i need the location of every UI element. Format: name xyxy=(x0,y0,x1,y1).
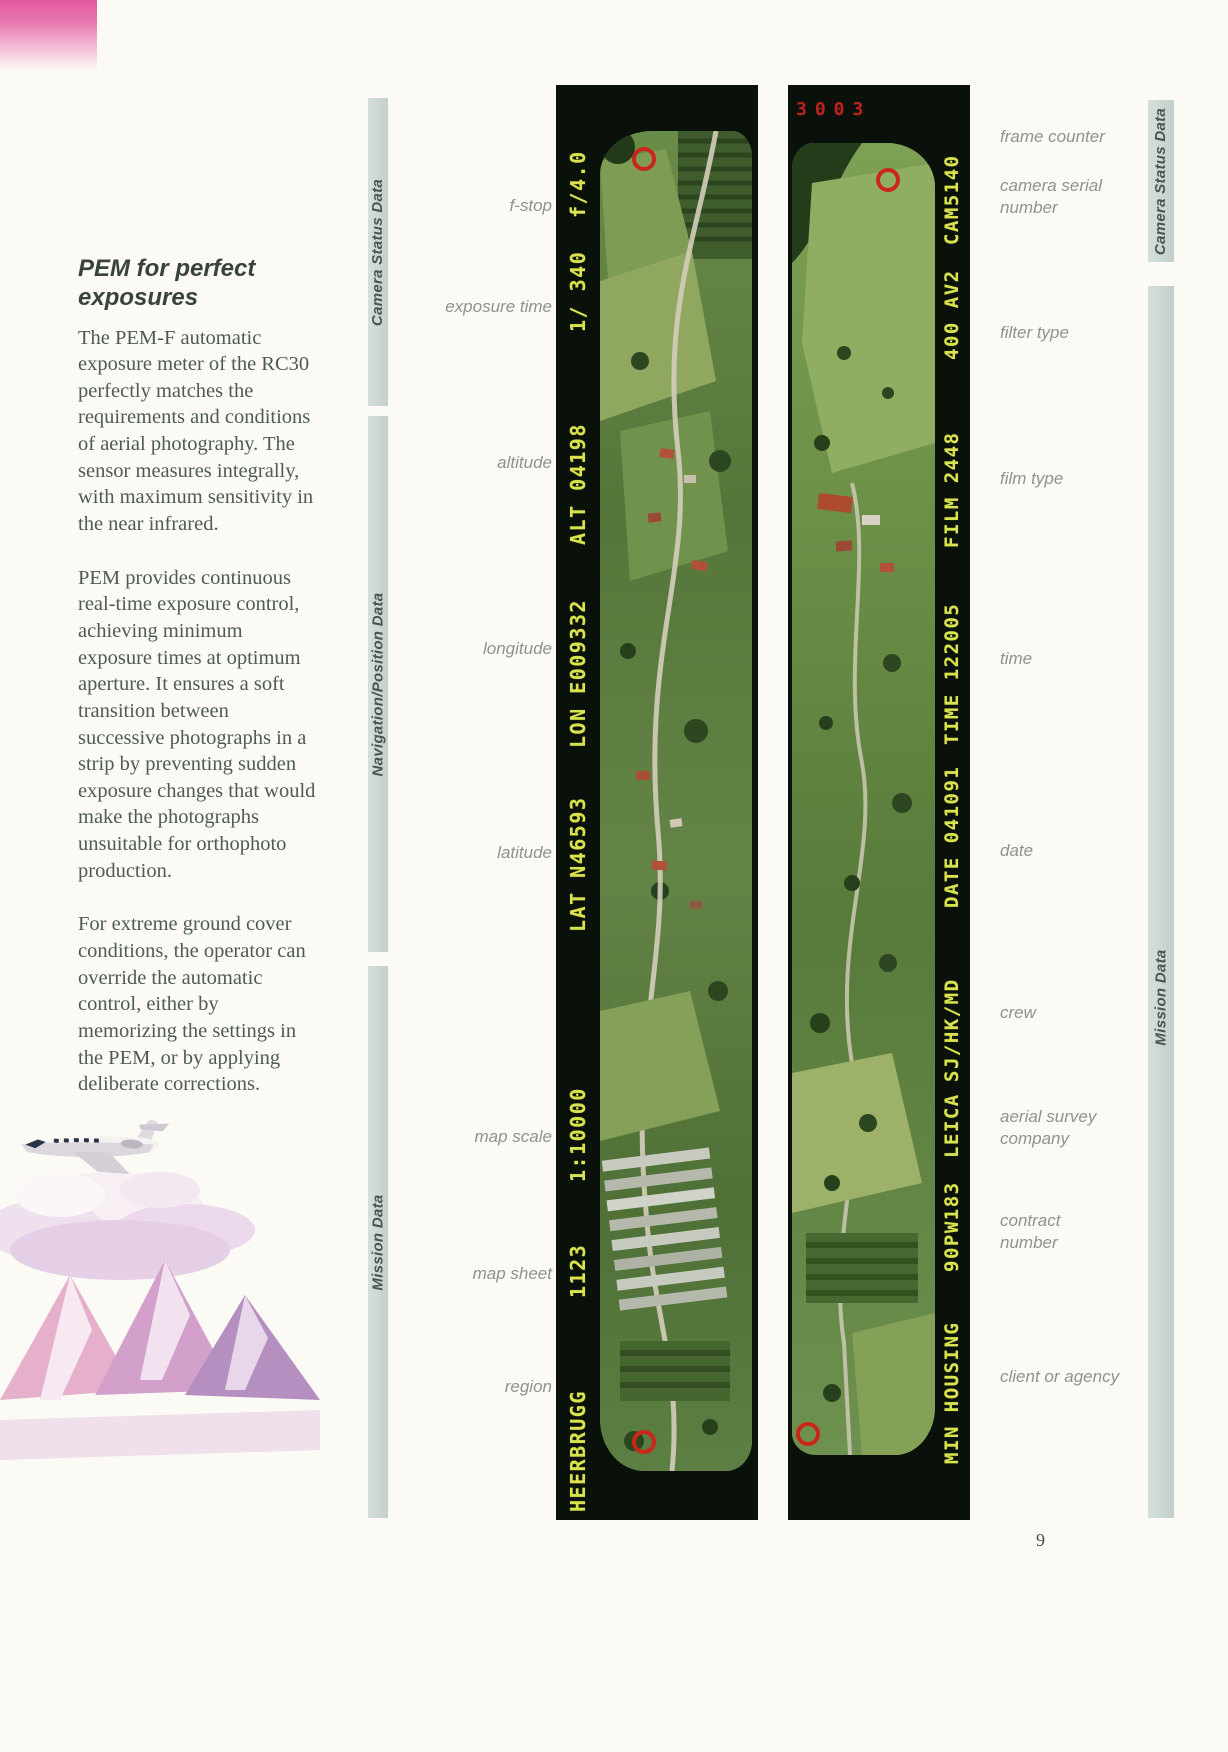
label-film-type: film type xyxy=(1000,468,1124,490)
annotation-map-scale: 1:10000 xyxy=(556,1087,600,1182)
annotation-longitude: LON E009332 xyxy=(556,599,600,748)
label-aerial-survey-company: aerial survey company xyxy=(1000,1106,1110,1150)
annotation-exposure-time: 1/ 340 xyxy=(556,251,600,332)
annotation-contract: 90PW183 xyxy=(935,1181,970,1272)
heading-line-2: exposures xyxy=(78,284,198,311)
annotation-camera-serial: CAM5140 xyxy=(935,154,970,245)
annotation-date: DATE 041091 xyxy=(935,766,970,908)
aerial-photo-artwork-left xyxy=(600,131,752,1471)
label-map-sheet: map sheet xyxy=(350,1263,552,1285)
category-bar-label: Camera Status Data xyxy=(1153,107,1170,254)
category-bar-mission-data-left: Mission Data xyxy=(368,966,388,1518)
label-exposure-time: exposure time xyxy=(350,296,552,318)
heading-line-1: PEM for perfect xyxy=(78,255,255,282)
aerial-photo-strip-left: HEERBRUGG 1123 1:10000 LAT N46593 LON E0… xyxy=(556,85,758,1520)
annotation-band-left: HEERBRUGG 1123 1:10000 LAT N46593 LON E0… xyxy=(556,85,600,1520)
label-latitude: latitude xyxy=(350,842,552,864)
annotation-map-sheet: 1123 xyxy=(556,1244,600,1298)
label-filter-type: filter type xyxy=(1000,322,1124,344)
annotation-filter-type: 400 AV2 xyxy=(935,269,970,360)
annotation-film-type: FILM 2448 xyxy=(935,432,970,548)
label-time: time xyxy=(1000,648,1124,670)
pink-corner-decoration xyxy=(0,0,97,70)
annotation-region: HEERBRUGG xyxy=(556,1390,600,1512)
label-altitude: altitude xyxy=(350,452,552,474)
label-camera-serial-number: camera serial number xyxy=(1000,175,1110,219)
category-bar-camera-status-right: Camera Status Data xyxy=(1148,100,1174,262)
article: PEM for perfect exposures The PEM-F auto… xyxy=(78,254,320,1125)
fiducial-mark xyxy=(876,168,900,192)
fiducial-mark xyxy=(632,147,656,171)
article-paragraph: The PEM-F automatic exposure meter of th… xyxy=(78,325,320,538)
category-bar-mission-data-right: Mission Data xyxy=(1148,286,1174,1518)
label-f-stop: f-stop xyxy=(350,195,552,217)
article-paragraph: PEM provides continuous real-time exposu… xyxy=(78,565,320,885)
label-date: date xyxy=(1000,840,1124,862)
label-crew: crew xyxy=(1000,1002,1124,1024)
aerial-photo-strip-right: 3003 MIN HOUSING 90PW183 LEICA SJ/HK/MD … xyxy=(788,85,970,1520)
label-map-scale: map scale xyxy=(350,1126,552,1148)
annotation-latitude: LAT N46593 xyxy=(556,797,600,932)
fiducial-mark xyxy=(632,1430,656,1454)
article-heading: PEM for perfect exposures xyxy=(78,254,320,313)
label-client-or-agency: client or agency xyxy=(1000,1366,1130,1388)
annotation-band-right: MIN HOUSING 90PW183 LEICA SJ/HK/MD DATE … xyxy=(935,85,970,1520)
aerial-photograph xyxy=(792,143,935,1455)
category-bar-label: Mission Data xyxy=(1153,949,1170,1045)
category-bar-label: Navigation/Position Data xyxy=(370,592,387,776)
annotation-client: MIN HOUSING xyxy=(935,1322,970,1464)
label-region: region xyxy=(350,1376,552,1398)
label-contract-number: contract number xyxy=(1000,1210,1090,1254)
annotation-crew: SJ/HK/MD xyxy=(935,978,970,1082)
label-longitude: longitude xyxy=(350,638,552,660)
fiducial-mark xyxy=(796,1422,820,1446)
frame-counter-value: 3003 xyxy=(796,99,871,120)
aerial-photograph xyxy=(600,131,752,1471)
annotation-time: TIME 122005 xyxy=(935,603,970,745)
annotation-altitude: ALT 04198 xyxy=(556,423,600,545)
label-frame-counter: frame counter xyxy=(1000,126,1124,148)
category-bar-navigation-position: Navigation/Position Data xyxy=(368,416,388,952)
aircraft-clouds-illustration xyxy=(0,1090,320,1510)
article-paragraph: For extreme ground cover conditions, the… xyxy=(78,911,320,1097)
brochure-page: PEM for perfect exposures The PEM-F auto… xyxy=(0,0,1228,1752)
annotation-f-stop: f/4.0 xyxy=(556,150,600,218)
category-bar-camera-status-left: Camera Status Data xyxy=(368,98,388,406)
aerial-photo-artwork-right xyxy=(792,143,935,1455)
page-number: 9 xyxy=(1036,1530,1045,1551)
annotation-company: LEICA xyxy=(935,1093,970,1158)
